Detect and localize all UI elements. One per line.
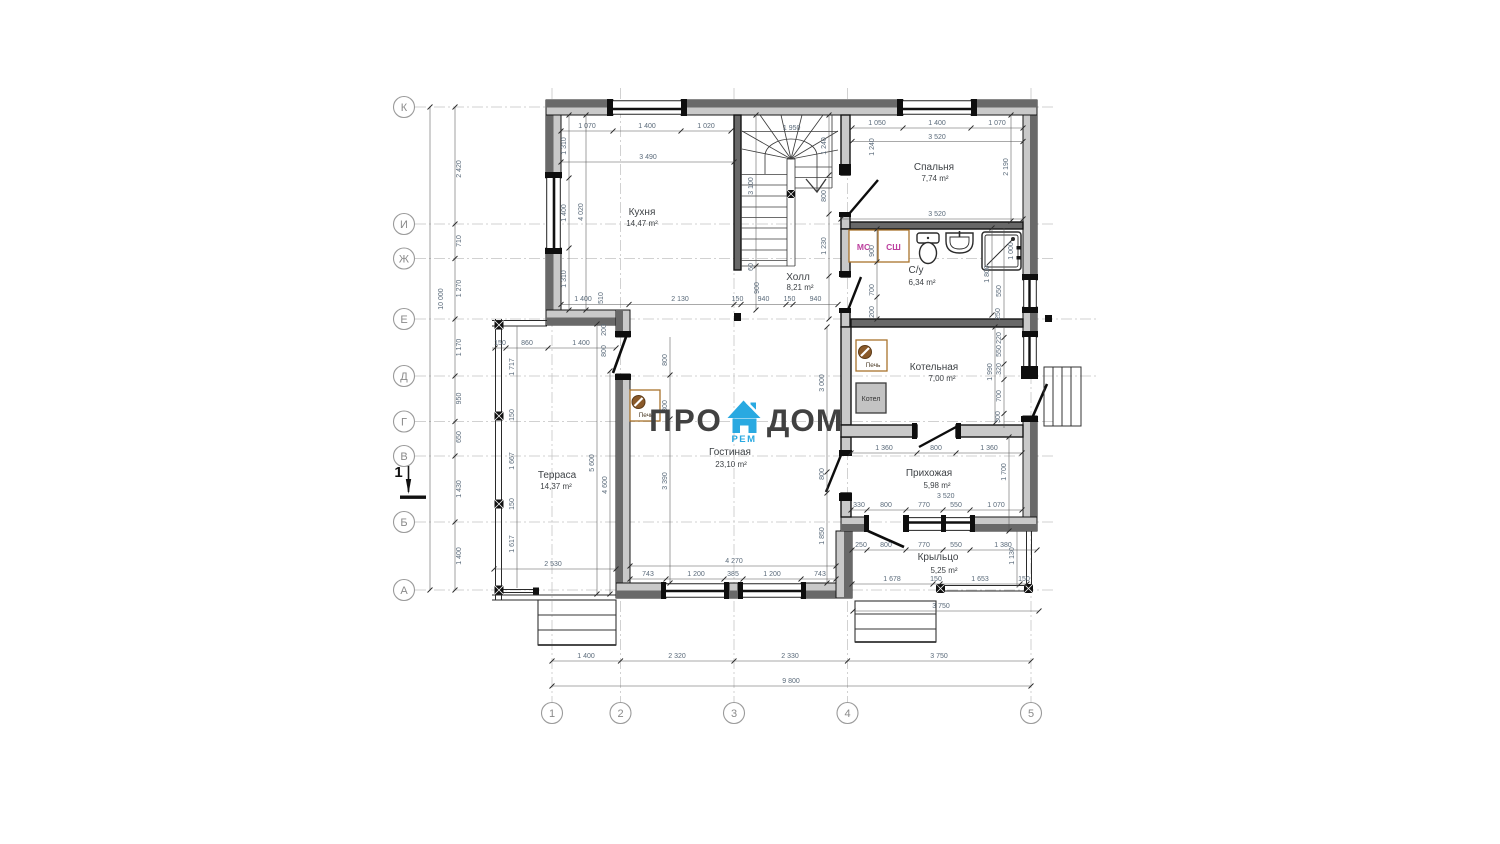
svg-text:1 950: 1 950 <box>783 125 801 132</box>
svg-text:1 200: 1 200 <box>687 571 705 578</box>
svg-text:3 520: 3 520 <box>928 211 946 218</box>
svg-text:2 420: 2 420 <box>456 160 463 178</box>
svg-text:1 230: 1 230 <box>821 237 828 255</box>
svg-text:700: 700 <box>996 390 1003 402</box>
svg-text:1 700: 1 700 <box>1001 463 1008 481</box>
svg-text:Кухня: Кухня <box>629 207 656 218</box>
svg-text:1 020: 1 020 <box>697 123 715 130</box>
svg-text:550: 550 <box>950 542 962 549</box>
svg-text:СШ: СШ <box>886 242 901 252</box>
svg-text:1 130: 1 130 <box>1009 547 1016 565</box>
svg-text:5 600: 5 600 <box>589 454 596 472</box>
svg-text:4 020: 4 020 <box>578 203 585 221</box>
svg-text:550: 550 <box>996 345 1003 357</box>
svg-text:385: 385 <box>727 571 739 578</box>
svg-text:60: 60 <box>748 263 755 271</box>
svg-text:770: 770 <box>918 502 930 509</box>
svg-text:2 130: 2 130 <box>671 296 689 303</box>
svg-text:2: 2 <box>617 708 623 720</box>
svg-text:150: 150 <box>930 576 942 583</box>
svg-text:1 850: 1 850 <box>819 527 826 545</box>
svg-text:650: 650 <box>456 431 463 443</box>
svg-text:1: 1 <box>394 464 402 481</box>
svg-text:Холл: Холл <box>786 272 810 283</box>
svg-text:700: 700 <box>869 284 876 296</box>
svg-text:250: 250 <box>995 308 1002 320</box>
svg-text:3 750: 3 750 <box>930 653 948 660</box>
svg-text:2 190: 2 190 <box>1003 158 1010 176</box>
svg-text:2 330: 2 330 <box>781 653 799 660</box>
svg-text:Спальня: Спальня <box>914 162 954 173</box>
svg-text:10 000: 10 000 <box>438 288 445 310</box>
svg-text:3: 3 <box>731 708 737 720</box>
svg-text:Котел: Котел <box>862 396 881 403</box>
svg-text:860: 860 <box>521 340 533 347</box>
svg-text:7,00 m²: 7,00 m² <box>928 374 955 383</box>
svg-text:510: 510 <box>598 292 605 304</box>
svg-text:1 070: 1 070 <box>987 502 1005 509</box>
svg-text:940: 940 <box>810 296 822 303</box>
svg-text:4 270: 4 270 <box>725 558 743 565</box>
svg-text:1 400: 1 400 <box>928 120 946 127</box>
svg-text:3 100: 3 100 <box>748 177 755 195</box>
svg-text:770: 770 <box>918 542 930 549</box>
svg-text:Крыльцо: Крыльцо <box>918 552 959 563</box>
svg-text:8,21 m²: 8,21 m² <box>786 283 813 292</box>
svg-text:800: 800 <box>930 445 942 452</box>
svg-text:150: 150 <box>784 296 796 303</box>
svg-text:150: 150 <box>1018 576 1030 583</box>
svg-text:1 617: 1 617 <box>509 535 516 553</box>
svg-text:В: В <box>400 451 407 463</box>
svg-text:1 310: 1 310 <box>561 137 568 155</box>
svg-text:1 430: 1 430 <box>456 480 463 498</box>
svg-text:2 320: 2 320 <box>668 653 686 660</box>
svg-text:1 800: 1 800 <box>984 265 991 283</box>
svg-text:1 360: 1 360 <box>980 445 998 452</box>
svg-text:4: 4 <box>844 708 850 720</box>
svg-text:1 070: 1 070 <box>988 120 1006 127</box>
svg-text:1 240: 1 240 <box>821 137 828 155</box>
svg-text:1 200: 1 200 <box>763 571 781 578</box>
svg-text:К: К <box>401 102 408 114</box>
svg-text:3 520: 3 520 <box>928 134 946 141</box>
svg-text:Котельная: Котельная <box>910 362 958 373</box>
svg-text:1 000: 1 000 <box>1008 242 1015 260</box>
svg-text:1 170: 1 170 <box>456 339 463 357</box>
svg-text:Г: Г <box>401 417 407 429</box>
svg-text:330: 330 <box>853 502 865 509</box>
svg-text:550: 550 <box>996 285 1003 297</box>
svg-text:7,74 m²: 7,74 m² <box>921 174 948 183</box>
svg-text:800: 800 <box>662 354 669 366</box>
svg-text:6,34 m²: 6,34 m² <box>908 278 935 287</box>
svg-text:А: А <box>400 585 408 597</box>
svg-text:2 530: 2 530 <box>544 561 562 568</box>
svg-text:900: 900 <box>869 245 876 257</box>
svg-text:Гостиная: Гостиная <box>709 447 751 458</box>
svg-text:Печь: Печь <box>866 362 881 369</box>
svg-text:200: 200 <box>601 324 608 336</box>
svg-text:800: 800 <box>880 502 892 509</box>
svg-text:5: 5 <box>1028 708 1034 720</box>
svg-text:Б: Б <box>400 517 407 529</box>
svg-text:1 667: 1 667 <box>509 452 516 470</box>
svg-text:940: 940 <box>758 296 770 303</box>
svg-text:1 270: 1 270 <box>456 280 463 298</box>
svg-text:3 490: 3 490 <box>639 154 657 161</box>
svg-text:3 520: 3 520 <box>937 493 955 500</box>
svg-text:14,37 m²: 14,37 m² <box>540 482 572 491</box>
svg-text:ПРО: ПРО <box>649 402 723 438</box>
svg-text:РЕМ: РЕМ <box>731 434 756 445</box>
svg-text:150: 150 <box>494 340 506 347</box>
svg-text:550: 550 <box>950 502 962 509</box>
svg-text:900: 900 <box>754 282 761 294</box>
svg-text:800: 800 <box>819 468 826 480</box>
svg-text:1 400: 1 400 <box>456 547 463 565</box>
svg-text:Ж: Ж <box>399 254 409 266</box>
svg-text:3 750: 3 750 <box>932 603 950 610</box>
svg-text:Терраса: Терраса <box>538 470 577 481</box>
svg-text:1 400: 1 400 <box>638 123 656 130</box>
svg-text:150: 150 <box>509 498 516 510</box>
svg-text:800: 800 <box>880 542 892 549</box>
svg-text:1 050: 1 050 <box>868 120 886 127</box>
svg-text:ДОМ: ДОМ <box>767 402 843 438</box>
svg-text:1 990: 1 990 <box>987 363 994 381</box>
svg-text:800: 800 <box>601 345 608 357</box>
svg-text:Д: Д <box>400 371 408 383</box>
svg-text:250: 250 <box>855 542 867 549</box>
svg-text:710: 710 <box>456 235 463 247</box>
svg-text:3 390: 3 390 <box>662 472 669 490</box>
svg-text:150: 150 <box>509 409 516 421</box>
svg-text:300: 300 <box>995 411 1002 423</box>
svg-text:4 600: 4 600 <box>602 476 609 494</box>
svg-text:5,98 m²: 5,98 m² <box>923 481 950 490</box>
svg-text:1 400: 1 400 <box>574 296 592 303</box>
svg-text:150: 150 <box>732 296 744 303</box>
svg-text:3 000: 3 000 <box>819 374 826 392</box>
svg-text:9 800: 9 800 <box>782 678 800 685</box>
svg-text:С/у: С/у <box>909 265 924 276</box>
svg-text:220: 220 <box>996 332 1003 344</box>
svg-text:743: 743 <box>814 571 826 578</box>
svg-text:14,47 m²: 14,47 m² <box>626 219 658 228</box>
svg-text:200: 200 <box>869 306 876 318</box>
svg-text:23,10 m²: 23,10 m² <box>715 460 747 469</box>
svg-text:1 400: 1 400 <box>561 204 568 222</box>
svg-text:320: 320 <box>996 363 1003 375</box>
svg-text:Е: Е <box>400 314 407 326</box>
svg-text:1 310: 1 310 <box>561 270 568 288</box>
svg-text:1 678: 1 678 <box>883 576 901 583</box>
svg-text:800: 800 <box>821 190 828 202</box>
svg-text:Прихожая: Прихожая <box>906 468 952 479</box>
svg-text:1 717: 1 717 <box>509 358 516 376</box>
svg-text:И: И <box>400 219 408 231</box>
svg-text:1 400: 1 400 <box>572 340 590 347</box>
svg-text:1: 1 <box>549 708 555 720</box>
svg-text:1 070: 1 070 <box>578 123 596 130</box>
svg-text:5,25 m²: 5,25 m² <box>930 566 957 575</box>
svg-text:1 240: 1 240 <box>869 138 876 156</box>
svg-text:1 653: 1 653 <box>971 576 989 583</box>
svg-text:743: 743 <box>642 571 654 578</box>
svg-text:1 360: 1 360 <box>875 445 893 452</box>
svg-text:950: 950 <box>456 393 463 405</box>
svg-text:1 400: 1 400 <box>577 653 595 660</box>
